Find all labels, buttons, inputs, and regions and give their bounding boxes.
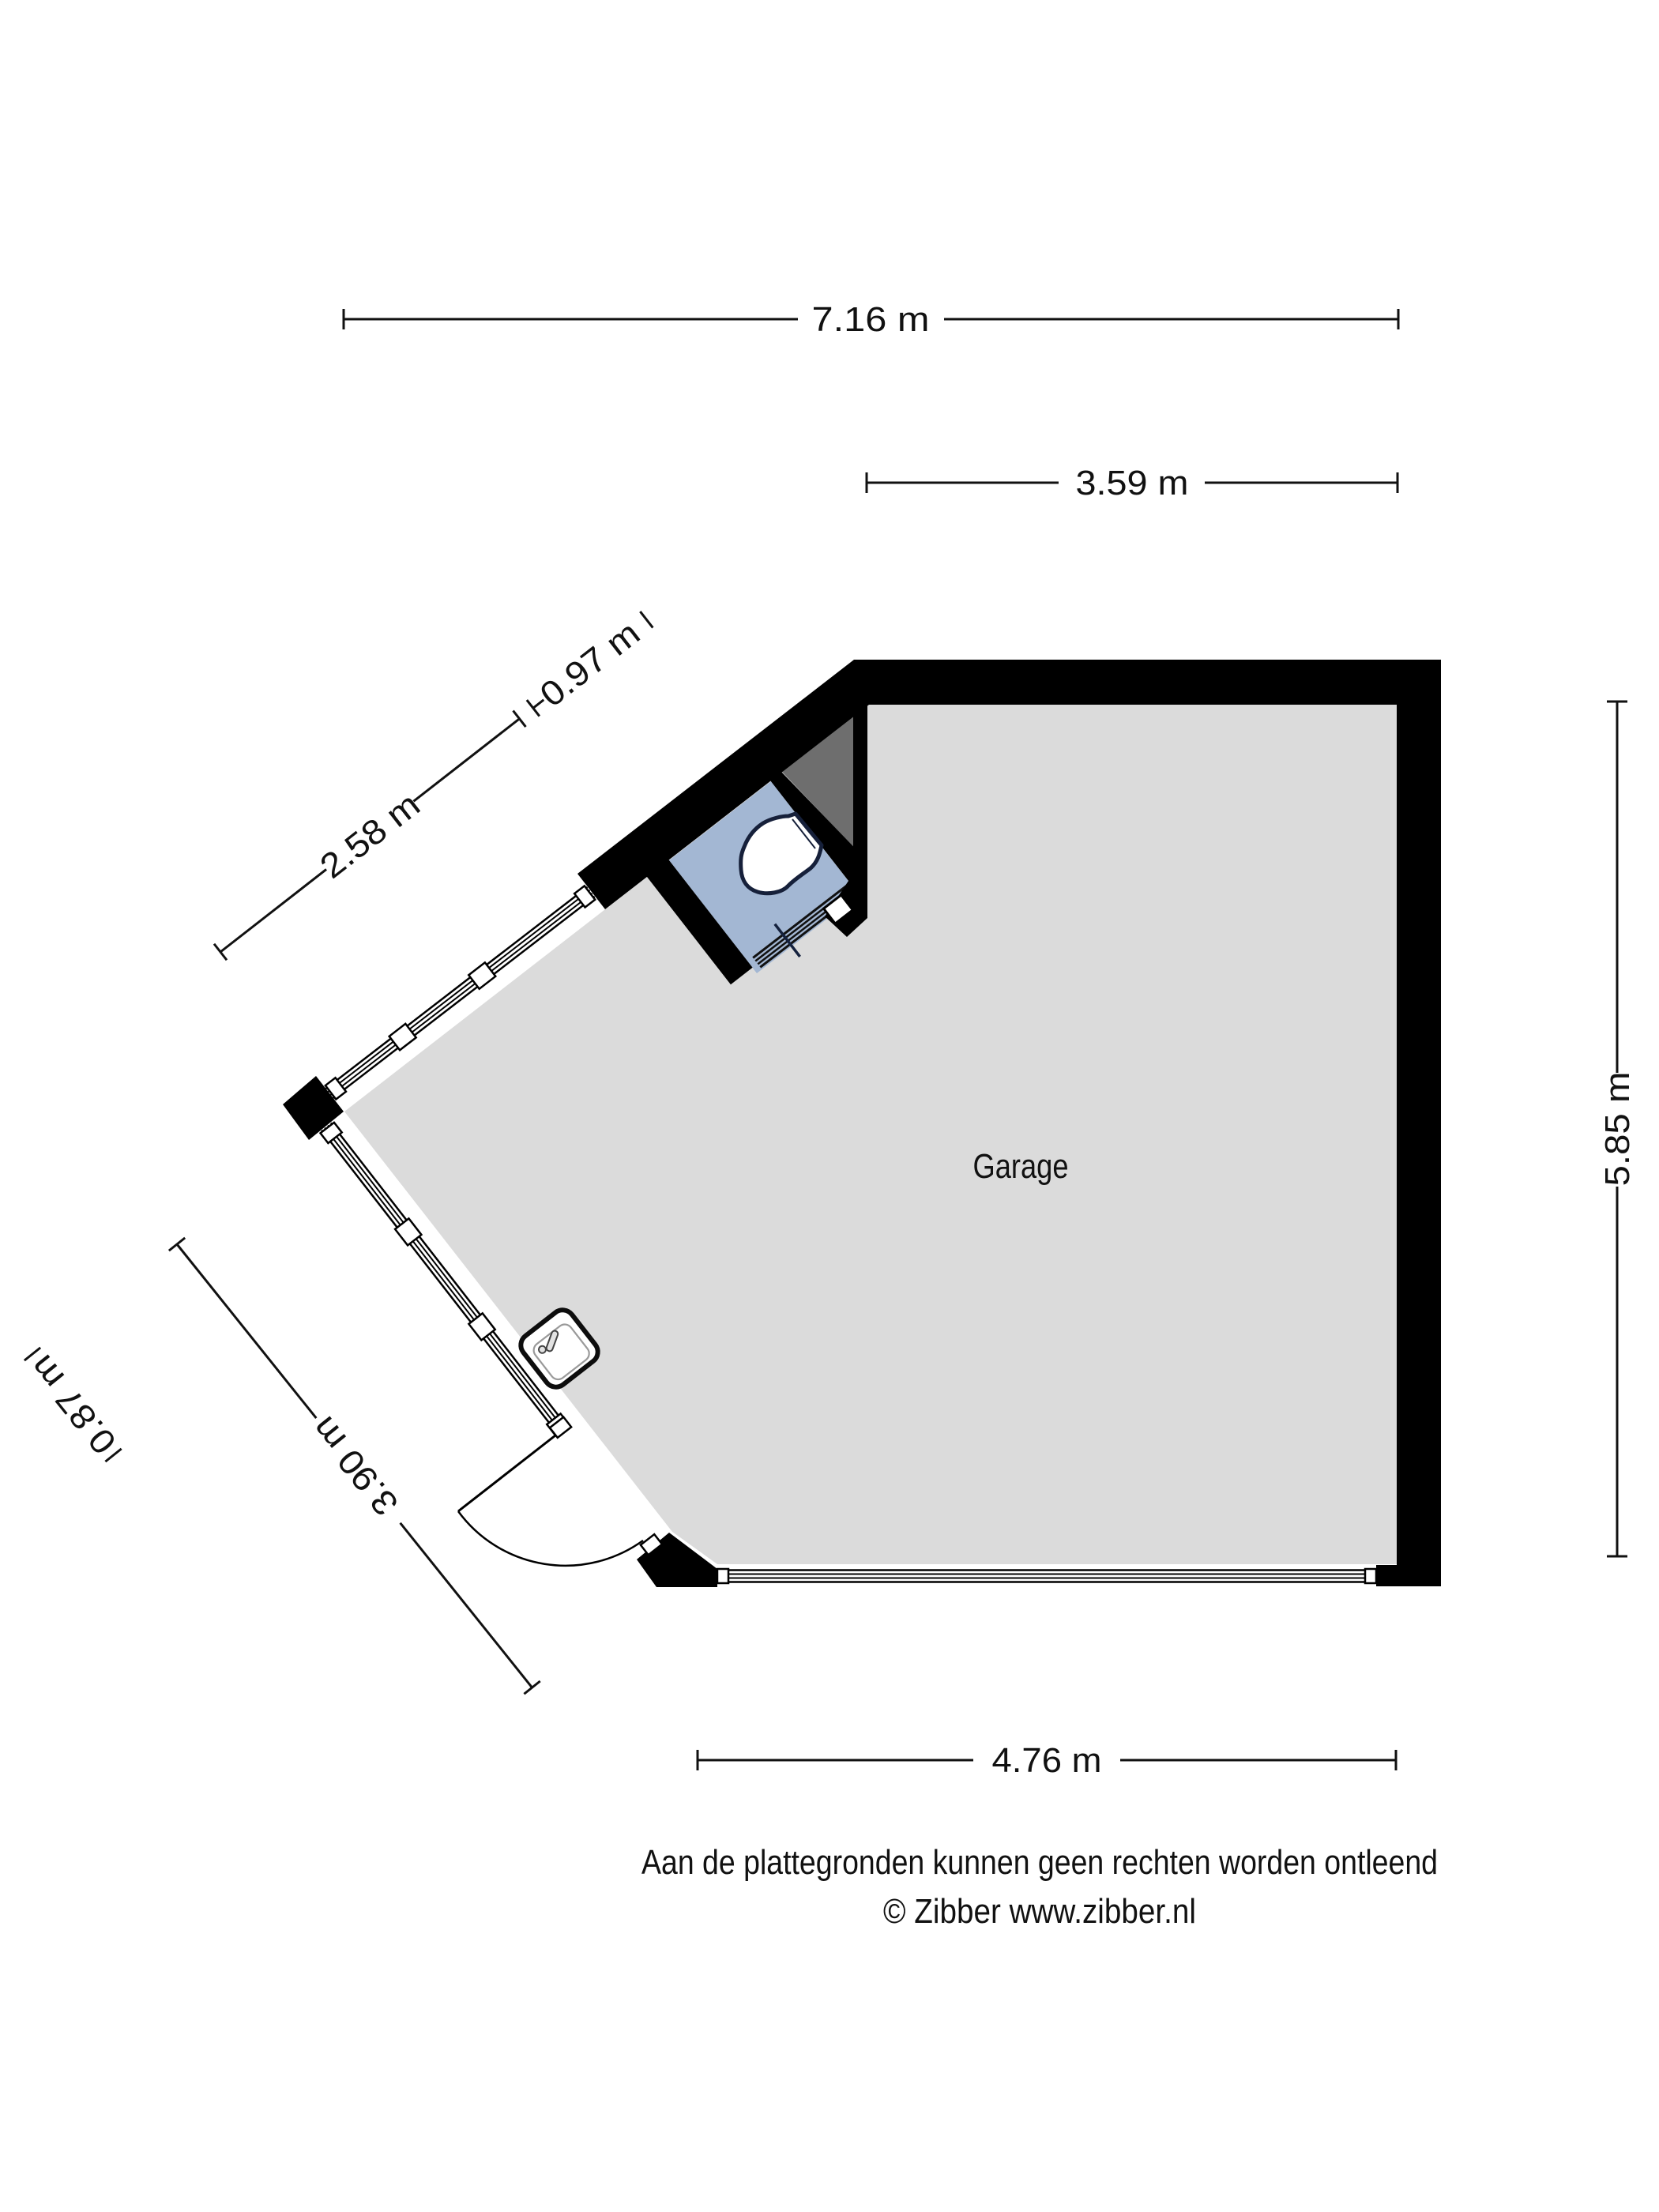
svg-text:Garage: Garage xyxy=(973,1147,1069,1186)
svg-text:© Zibber www.zibber.nl: © Zibber www.zibber.nl xyxy=(883,1892,1196,1931)
svg-text:5.85 m: 5.85 m xyxy=(1598,1072,1637,1187)
svg-text:3.59 m: 3.59 m xyxy=(1076,464,1189,502)
svg-text:4.76 m: 4.76 m xyxy=(992,1741,1102,1780)
svg-text:7.16 m: 7.16 m xyxy=(812,300,930,339)
svg-text:Aan de plattegronden kunnen ge: Aan de plattegronden kunnen geen rechten… xyxy=(641,1843,1438,1882)
